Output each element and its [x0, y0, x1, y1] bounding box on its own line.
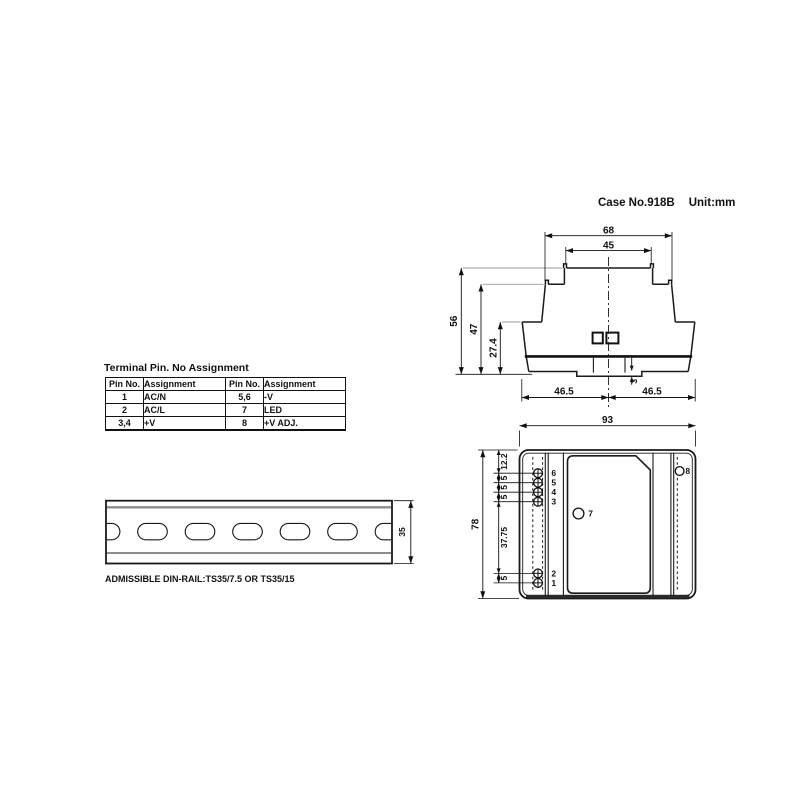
dim-height-total-label: 56	[449, 315, 460, 327]
mechanical-drawing: 68 45 56 47 27.4 46.5 46.5 3	[0, 0, 800, 800]
dim-base-left-label: 46.5	[554, 387, 574, 398]
pin-label-2: 2	[551, 568, 556, 578]
dim-rear-width-label: 93	[602, 415, 614, 426]
datasheet-page: Case No.918BUnit:mm Terminal Pin. No Ass…	[0, 0, 800, 800]
front-view-outline	[522, 257, 695, 408]
din-clip-window-left	[593, 333, 603, 344]
adjust-pot: 8	[675, 466, 690, 476]
pin-label-1: 1	[551, 578, 556, 588]
dim-chain-5a: 5	[499, 475, 509, 480]
adj-label: 8	[685, 466, 690, 476]
dim-rear-height-label: 78	[471, 518, 482, 530]
dim-rail-height-label: 35	[397, 527, 407, 537]
din-rail-body	[106, 501, 392, 564]
led-indicator: 7	[573, 508, 593, 519]
front-view-dimensions: 68 45 56 47 27.4 46.5 46.5 3	[449, 225, 695, 401]
din-rail-dimension: 35	[394, 501, 414, 564]
front-view: 68 45 56 47 27.4 46.5 46.5 3	[449, 225, 695, 407]
terminal-screw-6	[534, 469, 543, 478]
pin-label-4: 4	[551, 487, 556, 497]
dim-chain-12-2: 12.2	[499, 453, 509, 470]
terminal-screw-2	[534, 569, 543, 578]
dim-chain-5b: 5	[499, 485, 509, 490]
pin-label-3: 3	[551, 497, 556, 507]
pin-label-5: 5	[551, 478, 556, 488]
terminal-screw-4	[534, 488, 543, 497]
terminal-screw-1	[534, 579, 543, 588]
din-rail-view: 35	[90, 501, 413, 564]
dim-top-width-label: 68	[603, 225, 615, 236]
pin-label-6: 6	[551, 468, 556, 478]
rear-view: 6 5 4 3 2 1 7 8	[471, 415, 696, 599]
terminal-screw-3	[534, 497, 543, 506]
dim-height-mid-label: 47	[469, 323, 480, 335]
dim-clip-depth-label: 3	[629, 379, 639, 384]
dim-chain-5c: 5	[499, 494, 509, 499]
dim-height-low-label: 27.4	[488, 338, 499, 358]
dim-chain-37-75: 37.75	[499, 527, 509, 549]
dim-base-right-label: 46.5	[642, 387, 662, 398]
rear-view-body	[520, 450, 696, 599]
dim-inner-top-width-label: 45	[603, 240, 615, 251]
terminal-screw-5	[534, 478, 543, 487]
led-label: 7	[588, 509, 593, 519]
dim-chain-5d: 5	[499, 575, 509, 580]
